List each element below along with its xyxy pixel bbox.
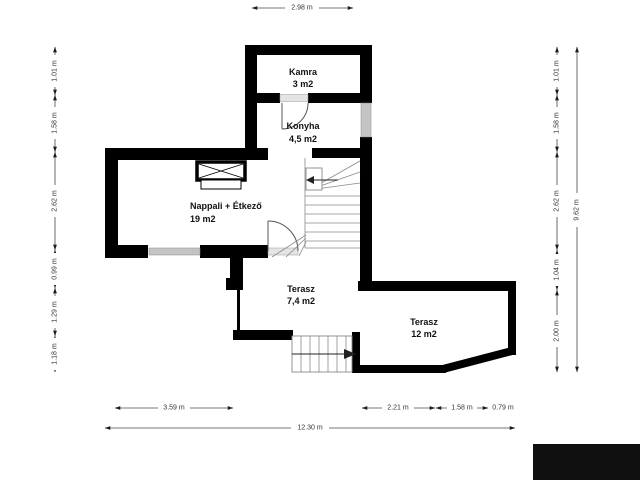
dim-right-4: 1.04 m: [554, 259, 561, 281]
fireplace-symbol: [197, 162, 245, 189]
door-threshold-kamra: [280, 95, 308, 102]
dim-bottom-2: 2.21 m: [387, 405, 409, 412]
room-area-nappali: 19 m2: [190, 214, 216, 224]
watermark-box: [533, 444, 640, 480]
exterior-stairs: [292, 336, 356, 372]
dim-right-5: 2.00 m: [554, 320, 561, 342]
room-area-terasz-large: 12 m2: [411, 329, 437, 339]
room-area-konyha: 4,5 m2: [289, 134, 317, 144]
floor-plan-drawing: Kamra 3 m2 Konyha 4,5 m2 Nappali + Étkez…: [0, 0, 640, 480]
window-konyha: [361, 103, 371, 137]
room-label-kamra: Kamra: [289, 67, 318, 77]
room-area-kamra: 3 m2: [293, 79, 314, 89]
dim-bottom-total: 12.30 m: [297, 425, 322, 432]
walls: [105, 45, 516, 373]
dim-left-3: 2.62 m: [52, 190, 59, 212]
dim-bottom-3: 1.58 m: [451, 405, 473, 412]
dim-left-4: 0.99 m: [52, 258, 59, 280]
room-labels: Kamra 3 m2 Konyha 4,5 m2 Nappali + Étkez…: [190, 67, 438, 339]
dim-left-1: 1.01 m: [52, 60, 59, 82]
dim-left-6: 1.18 m: [52, 343, 59, 365]
dim-bottom-4: 0.79 m: [492, 405, 514, 412]
room-label-nappali: Nappali + Étkező: [190, 201, 262, 211]
floor-plan-canvas: Kamra 3 m2 Konyha 4,5 m2 Nappali + Étkez…: [0, 0, 640, 480]
dim-left-5: 1.29 m: [52, 301, 59, 323]
dim-left-2: 1.58 m: [52, 112, 59, 134]
room-area-terasz-small: 7,4 m2: [287, 296, 315, 306]
room-label-terasz-small: Terasz: [287, 284, 315, 294]
window-nappali: [149, 248, 200, 255]
doors: [268, 95, 308, 256]
dim-right-2: 1.58 m: [554, 112, 561, 134]
interior-stairs: [272, 158, 360, 257]
door-threshold-terasz: [268, 248, 298, 255]
dim-top: 2.98 m: [291, 5, 313, 12]
dim-right-3: 2.62 m: [554, 190, 561, 212]
room-label-konyha: Konyha: [286, 121, 320, 131]
dim-right-1: 1.01 m: [554, 60, 561, 82]
dim-right-total: 9.62 m: [574, 199, 581, 221]
room-label-terasz-large: Terasz: [410, 317, 438, 327]
dim-bottom-1: 3.59 m: [163, 405, 185, 412]
